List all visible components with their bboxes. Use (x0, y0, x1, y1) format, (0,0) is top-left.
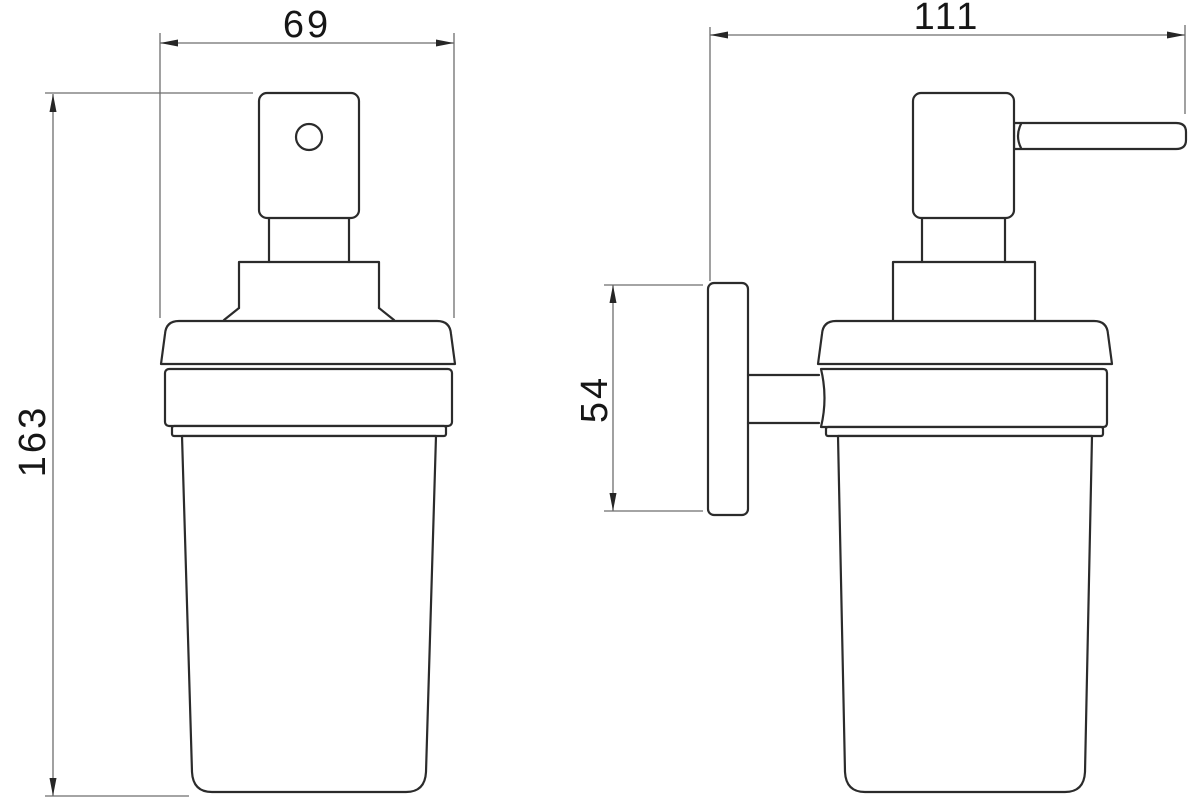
pump-spout-side (1014, 123, 1186, 149)
dimension-label-69: 69 (283, 4, 331, 46)
front-view (161, 93, 455, 792)
pump-collar-front (239, 262, 379, 308)
holder-ring-front (165, 369, 452, 426)
technical-drawing-canvas: 69 163 111 54 (0, 0, 1200, 800)
pump-head-hole (296, 124, 322, 150)
collar-chamfer-left (224, 308, 239, 320)
ring-rim-front (172, 426, 446, 436)
bracket-arm-side (748, 375, 819, 423)
extension-lines-54 (604, 285, 703, 511)
side-view (708, 93, 1186, 792)
dimension-label-111: 111 (914, 0, 981, 38)
arrowhead-163-bottom (50, 778, 57, 796)
wall-plate-side (708, 283, 748, 515)
dispenser-lid-side (818, 321, 1112, 364)
dimension-label-163: 163 (12, 405, 54, 477)
arrowhead-111-left (710, 32, 728, 39)
glass-cup-front (182, 436, 436, 792)
arrowhead-69-left (160, 40, 178, 47)
soap-dispenser-technical-drawing: 69 163 111 54 (0, 0, 1200, 800)
pump-collar-side (893, 262, 1035, 321)
ring-rim-side (826, 427, 1103, 436)
glass-cup-side (838, 436, 1092, 792)
pump-head-side (913, 93, 1014, 218)
arrowhead-111-right (1167, 32, 1185, 39)
pump-neck-front (269, 218, 349, 262)
dimension-wall-plate-height: 54 (574, 285, 703, 511)
dispenser-lid-front (161, 321, 455, 364)
arrowhead-54-bottom (610, 493, 617, 511)
arrowhead-54-top (610, 285, 617, 303)
holder-ring-side (821, 369, 1107, 427)
pump-neck-side (922, 218, 1005, 262)
dimension-label-54: 54 (574, 375, 616, 423)
collar-chamfer-right (379, 308, 394, 320)
pump-head-front (259, 93, 359, 218)
arrowhead-163-top (50, 94, 57, 112)
arrowhead-69-right (436, 40, 454, 47)
